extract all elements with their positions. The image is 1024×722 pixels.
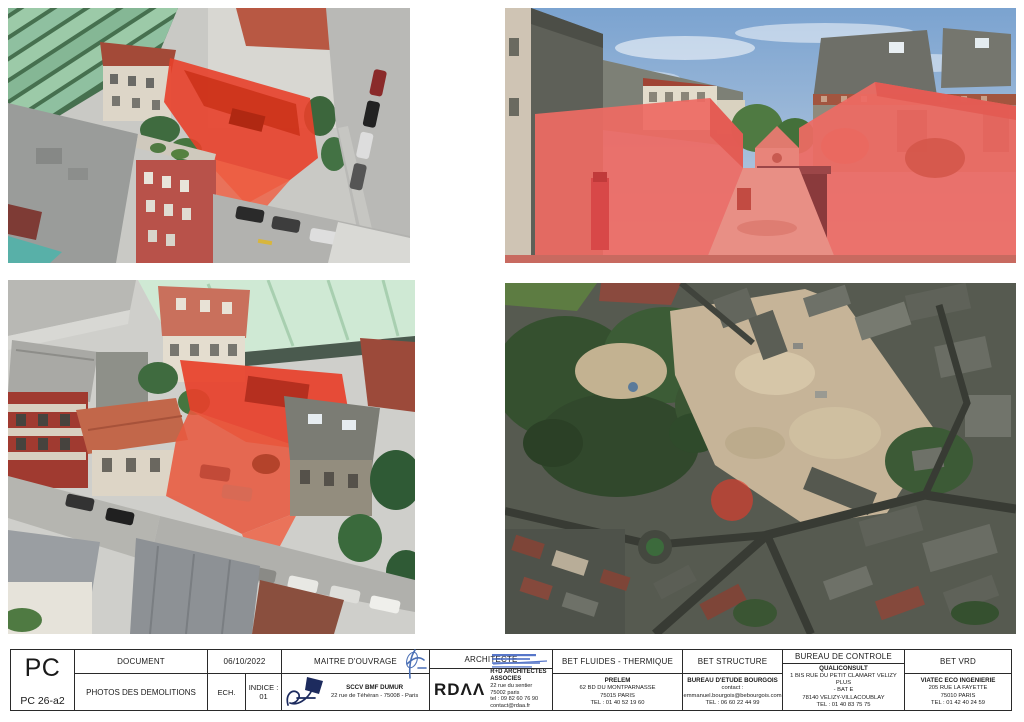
- indice-label: INDICE :: [249, 683, 279, 692]
- title-block-cell-architecte: ARCHITECTE RDΛΛ R+D ARCHITECTES ASSOCIES…: [429, 650, 552, 710]
- document-sheet: PC PC 26-a2 DOCUMENT PHOTOS DES DEMOLITI…: [0, 0, 1024, 722]
- bet-vrd-info: VIATEC ECO INGENIERIE 205 RUE LA FAYETTE…: [919, 676, 998, 708]
- bet-fluides-address-1: 62 BD DU MONTPARNASSE: [580, 685, 656, 692]
- revision-index: INDICE : 01: [245, 674, 281, 710]
- indice-value: 01: [259, 692, 267, 701]
- document-code: PC: [25, 654, 61, 683]
- bet-structure-label: BET STRUCTURE: [683, 650, 782, 674]
- photo-street-view: [505, 8, 1016, 263]
- bet-fluides-address-2: 75015 PARIS: [600, 693, 635, 700]
- bmf-logo: [285, 676, 325, 708]
- title-block: PC PC 26-a2 DOCUMENT PHOTOS DES DEMOLITI…: [10, 649, 1012, 711]
- bet-vrd-label: BET VRD: [905, 650, 1011, 674]
- bet-structure-phone: TEL : 06 60 22 44 99: [706, 700, 760, 707]
- bet-structure-info: BUREAU D'ETUDE BOURGOIS contact : emmanu…: [681, 676, 783, 708]
- maitre-douvrage-label: MAITRE D'OUVRAGE: [314, 657, 397, 666]
- maitre-douvrage-address: 22 rue de Téhéran - 75008 - Paris: [331, 693, 418, 700]
- street-view-illustration: [505, 8, 1016, 263]
- scale-label: ECH.: [208, 674, 245, 710]
- bureau-controle-address-1: 1 BIS RUE DU PETIT CLAMART VELIZY PLUS: [785, 673, 902, 687]
- title-block-cell-maitre-douvrage: MAITRE D'OUVRAGE SCCV BMF DUMUR 22 rue d…: [281, 650, 429, 710]
- blue-signature-paraph: [401, 648, 427, 682]
- rdaa-logo: RDΛΛ: [434, 680, 485, 700]
- bet-vrd-phone: TEL : 01 42 40 24 59: [931, 700, 985, 707]
- document-label: DOCUMENT: [75, 650, 207, 674]
- bet-vrd-address-2: 75010 PARIS: [941, 693, 976, 700]
- bet-vrd-name: VIATEC ECO INGENIERIE: [921, 677, 996, 684]
- photo-aerial-3d-closeup: [8, 280, 415, 634]
- title-block-cell-date: 06/10/2022 ECH. INDICE : 01: [207, 650, 281, 710]
- aerial-3d-illustration: [8, 8, 410, 263]
- architecte-address-1: 22 rue du sentier: [490, 683, 548, 690]
- bet-structure-name: BUREAU D'ETUDE BOURGOIS: [687, 677, 778, 684]
- aerial-closeup-illustration: [8, 280, 415, 634]
- bureau-controle-info: QUALICONSULT 1 BIS RUE DU PETIT CLAMART …: [783, 664, 904, 710]
- document-date: 06/10/2022: [208, 650, 281, 674]
- bureau-controle-address-2: - BAT E: [834, 687, 854, 694]
- bureau-controle-name: QUALICONSULT: [819, 665, 868, 672]
- bet-fluides-name: PRELEM: [605, 677, 631, 684]
- title-block-cell-bet-fluides: BET FLUIDES - THERMIQUE PRELEM 62 BD DU …: [552, 650, 682, 710]
- architecte-phone: tel : 09 82 60 76 90: [490, 696, 548, 703]
- maitre-douvrage-info: SCCV BMF DUMUR 22 rue de Téhéran - 75008…: [329, 683, 420, 700]
- bet-vrd-address-1: 205 RUE LA FAYETTE: [929, 685, 988, 692]
- architecte-email: contact@rdaa.fr: [490, 703, 548, 710]
- site-marker-circle: [711, 479, 753, 521]
- title-block-cell-code: PC PC 26-a2: [11, 650, 74, 710]
- title-block-cell-document: DOCUMENT PHOTOS DES DEMOLITIONS: [74, 650, 207, 710]
- maitre-douvrage-name: SCCV BMF DUMUR: [346, 684, 403, 691]
- bureau-controle-label: BUREAU DE CONTROLE: [783, 650, 904, 664]
- title-block-cell-bureau-controle: BUREAU DE CONTROLE QUALICONSULT 1 BIS RU…: [782, 650, 904, 710]
- photo-aerial-3d-overview: [8, 8, 410, 263]
- title-block-cell-bet-vrd: BET VRD VIATEC ECO INGENIERIE 205 RUE LA…: [904, 650, 1011, 710]
- photo-satellite-map: [505, 283, 1016, 634]
- satellite-illustration: [505, 283, 1016, 634]
- title-block-cell-bet-structure: BET STRUCTURE BUREAU D'ETUDE BOURGOIS co…: [682, 650, 782, 710]
- bet-fluides-phone: TEL : 01 40 52 19 60: [591, 700, 645, 707]
- architecte-info: R+D ARCHITECTES ASSOCIES 22 rue du senti…: [490, 669, 548, 710]
- architecte-name: R+D ARCHITECTES ASSOCIES: [490, 669, 548, 683]
- bureau-controle-phone: TEL : 01 40 83 75 75: [817, 702, 871, 709]
- architect-stamp: [491, 653, 549, 671]
- architecte-address-2: 75002 paris: [490, 690, 548, 697]
- bureau-controle-address-3: 78140 VELIZY-VILLACOUBLAY: [802, 695, 884, 702]
- bet-fluides-info: PRELEM 62 BD DU MONTPARNASSE 75015 PARIS…: [578, 676, 658, 708]
- document-title: PHOTOS DES DEMOLITIONS: [75, 674, 207, 710]
- bet-fluides-label: BET FLUIDES - THERMIQUE: [553, 650, 682, 674]
- bet-structure-contact: contact : emmanuel.bourgois@bebourgois.c…: [683, 685, 781, 699]
- document-reference: PC 26-a2: [20, 695, 64, 707]
